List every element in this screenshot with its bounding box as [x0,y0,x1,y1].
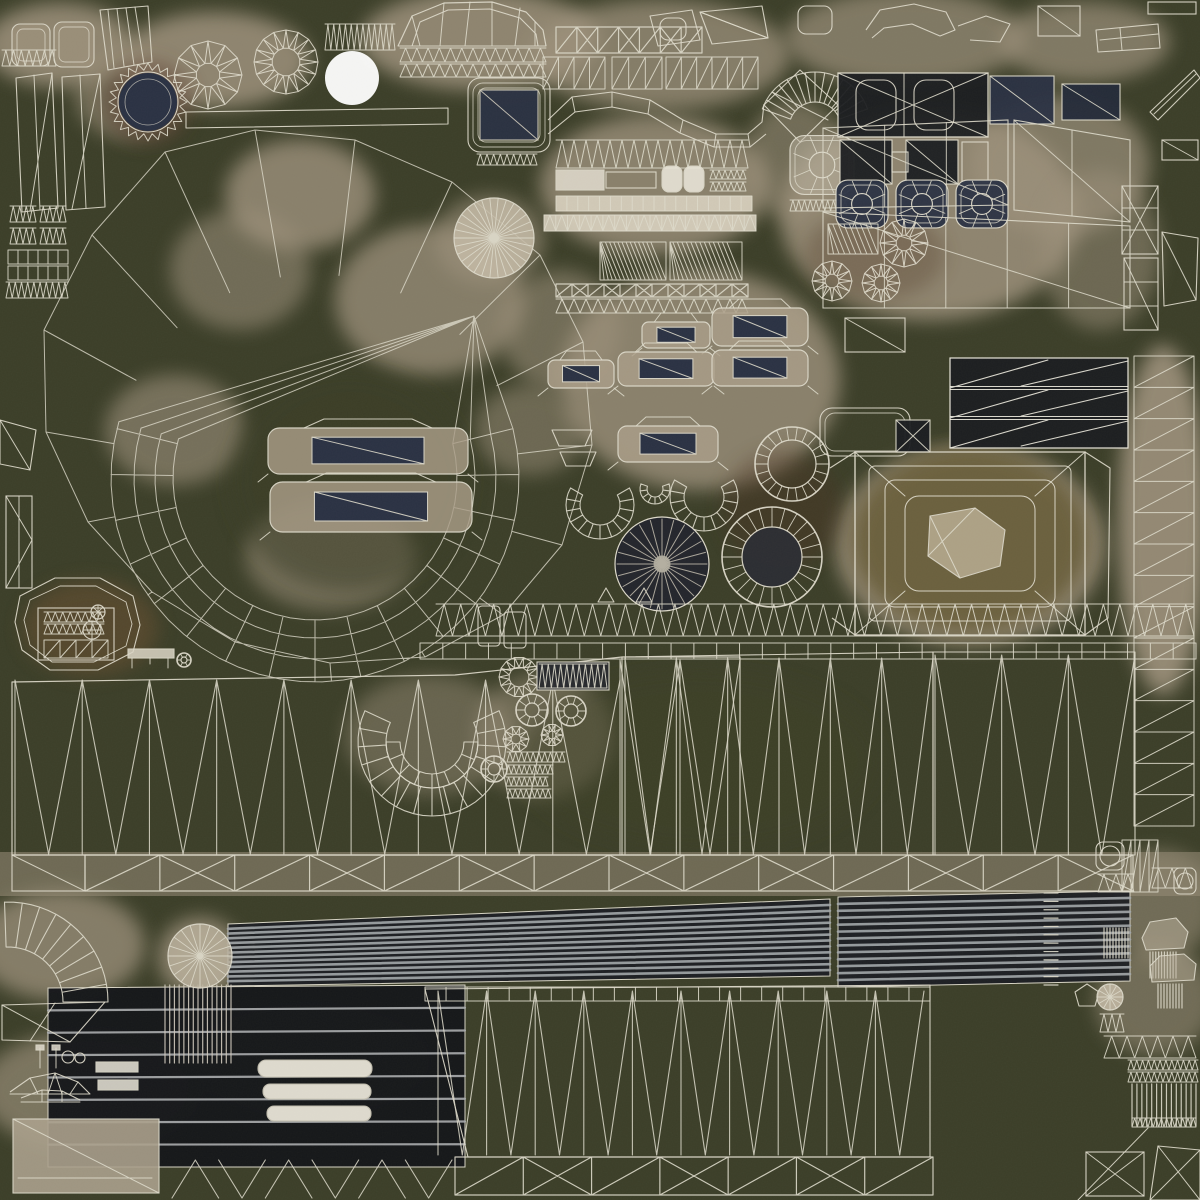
noise-overlay [0,0,1200,1200]
uv-canvas [0,0,1200,1200]
uv-texture-atlas [0,0,1200,1200]
